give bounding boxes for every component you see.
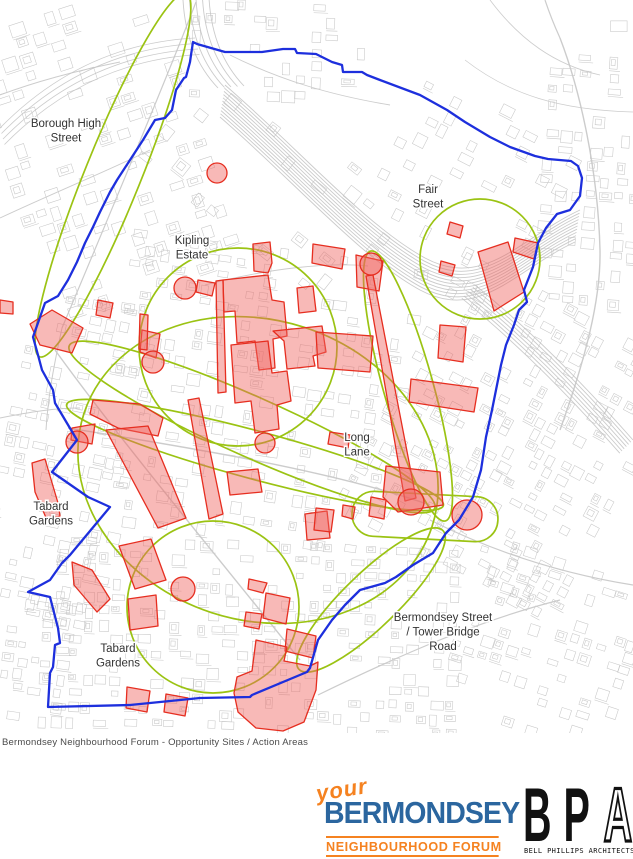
opportunity-site xyxy=(312,244,345,269)
bpa-letter-a-outline: A xyxy=(604,785,633,845)
map-label-tabard-gardens-south: Gardens xyxy=(96,658,140,670)
opportunity-site xyxy=(0,300,13,314)
opportunity-site-node xyxy=(171,577,195,601)
opportunity-site xyxy=(196,280,215,296)
opportunity-site-node xyxy=(207,163,227,183)
opportunity-site xyxy=(409,379,478,412)
map-canvas: Borough HighStreetFairStreetKiplingEstat… xyxy=(0,0,633,733)
map-caption: Bermondsey Neighbourhood Forum - Opportu… xyxy=(2,737,308,748)
forum-logo-subtitle-text: NEIGHBOURHOOD FORUM xyxy=(326,836,499,857)
opportunity-site xyxy=(244,612,262,629)
opportunity-site xyxy=(188,398,223,519)
opportunity-site xyxy=(297,286,316,313)
opportunity-site xyxy=(447,222,463,238)
bpa-letter-b: B xyxy=(523,785,552,845)
map-label-kipling-estate: Kipling xyxy=(175,235,210,247)
opportunity-site xyxy=(139,314,148,350)
opportunity-site xyxy=(316,332,373,372)
opportunity-site xyxy=(263,593,290,624)
opportunity-site xyxy=(164,694,188,716)
bpa-logo-name-text: BELL PHILLIPS ARCHITECTS xyxy=(524,847,633,855)
map-label-tabard-gardens-south: Tabard xyxy=(100,643,135,655)
opportunity-site xyxy=(227,469,262,495)
opportunity-site xyxy=(342,505,355,519)
action-area-ellipse xyxy=(14,0,213,367)
opportunity-site xyxy=(231,341,291,433)
map-label-fair-street: Fair xyxy=(418,184,438,196)
bpa-architects-logo: B P A BELL PHILLIPS ARCHITECTS xyxy=(523,785,633,859)
opportunity-site-node xyxy=(452,500,482,530)
opportunity-site xyxy=(126,687,150,712)
opportunity-site xyxy=(72,562,110,612)
opportunity-site xyxy=(253,242,272,273)
opportunity-site xyxy=(248,579,267,593)
opportunity-site xyxy=(314,508,334,532)
map-label-long-lane: Long xyxy=(344,432,370,444)
opportunity-site xyxy=(369,497,386,519)
opportunity-site-node xyxy=(142,351,164,373)
opportunity-site xyxy=(128,595,158,630)
map-label-borough-high-street: Borough High xyxy=(31,118,101,130)
opportunity-site xyxy=(119,539,166,589)
map-label-long-lane: Lane xyxy=(344,447,370,459)
opportunity-site xyxy=(96,300,113,318)
opportunity-site-node xyxy=(398,489,424,515)
map-label-bermondsey-street-tower-bridge-road: Road xyxy=(429,641,457,653)
opportunity-site-node xyxy=(360,253,382,275)
map-label-borough-high-street: Street xyxy=(51,133,82,145)
map-label-fair-street: Street xyxy=(413,199,444,211)
map-label-tabard-gardens-north: Gardens xyxy=(29,516,73,528)
map-label-kipling-estate: Estate xyxy=(176,250,209,262)
map-label-bermondsey-street-tower-bridge-road: Bermondsey Street xyxy=(394,612,493,624)
opportunity-site xyxy=(285,629,316,658)
opportunity-site xyxy=(438,325,466,362)
opportunity-site xyxy=(106,426,186,528)
opportunity-site-node xyxy=(174,277,196,299)
report-page: Borough HighStreetFairStreetKiplingEstat… xyxy=(0,0,633,859)
bermondsey-forum-logo: your BERMONDSEY NEIGHBOURHOOD FORUM xyxy=(315,780,515,859)
bpa-letter-p: P xyxy=(564,785,590,845)
map-label-bermondsey-street-tower-bridge-road: / Tower Bridge xyxy=(406,627,479,639)
map-label-tabard-gardens-north: Tabard xyxy=(33,501,68,513)
forum-logo-name-text: BERMONDSEY xyxy=(324,795,519,831)
opportunity-site xyxy=(439,261,455,276)
bpa-initials-graphic: B P A xyxy=(523,785,633,845)
opportunity-site-node xyxy=(255,433,275,453)
